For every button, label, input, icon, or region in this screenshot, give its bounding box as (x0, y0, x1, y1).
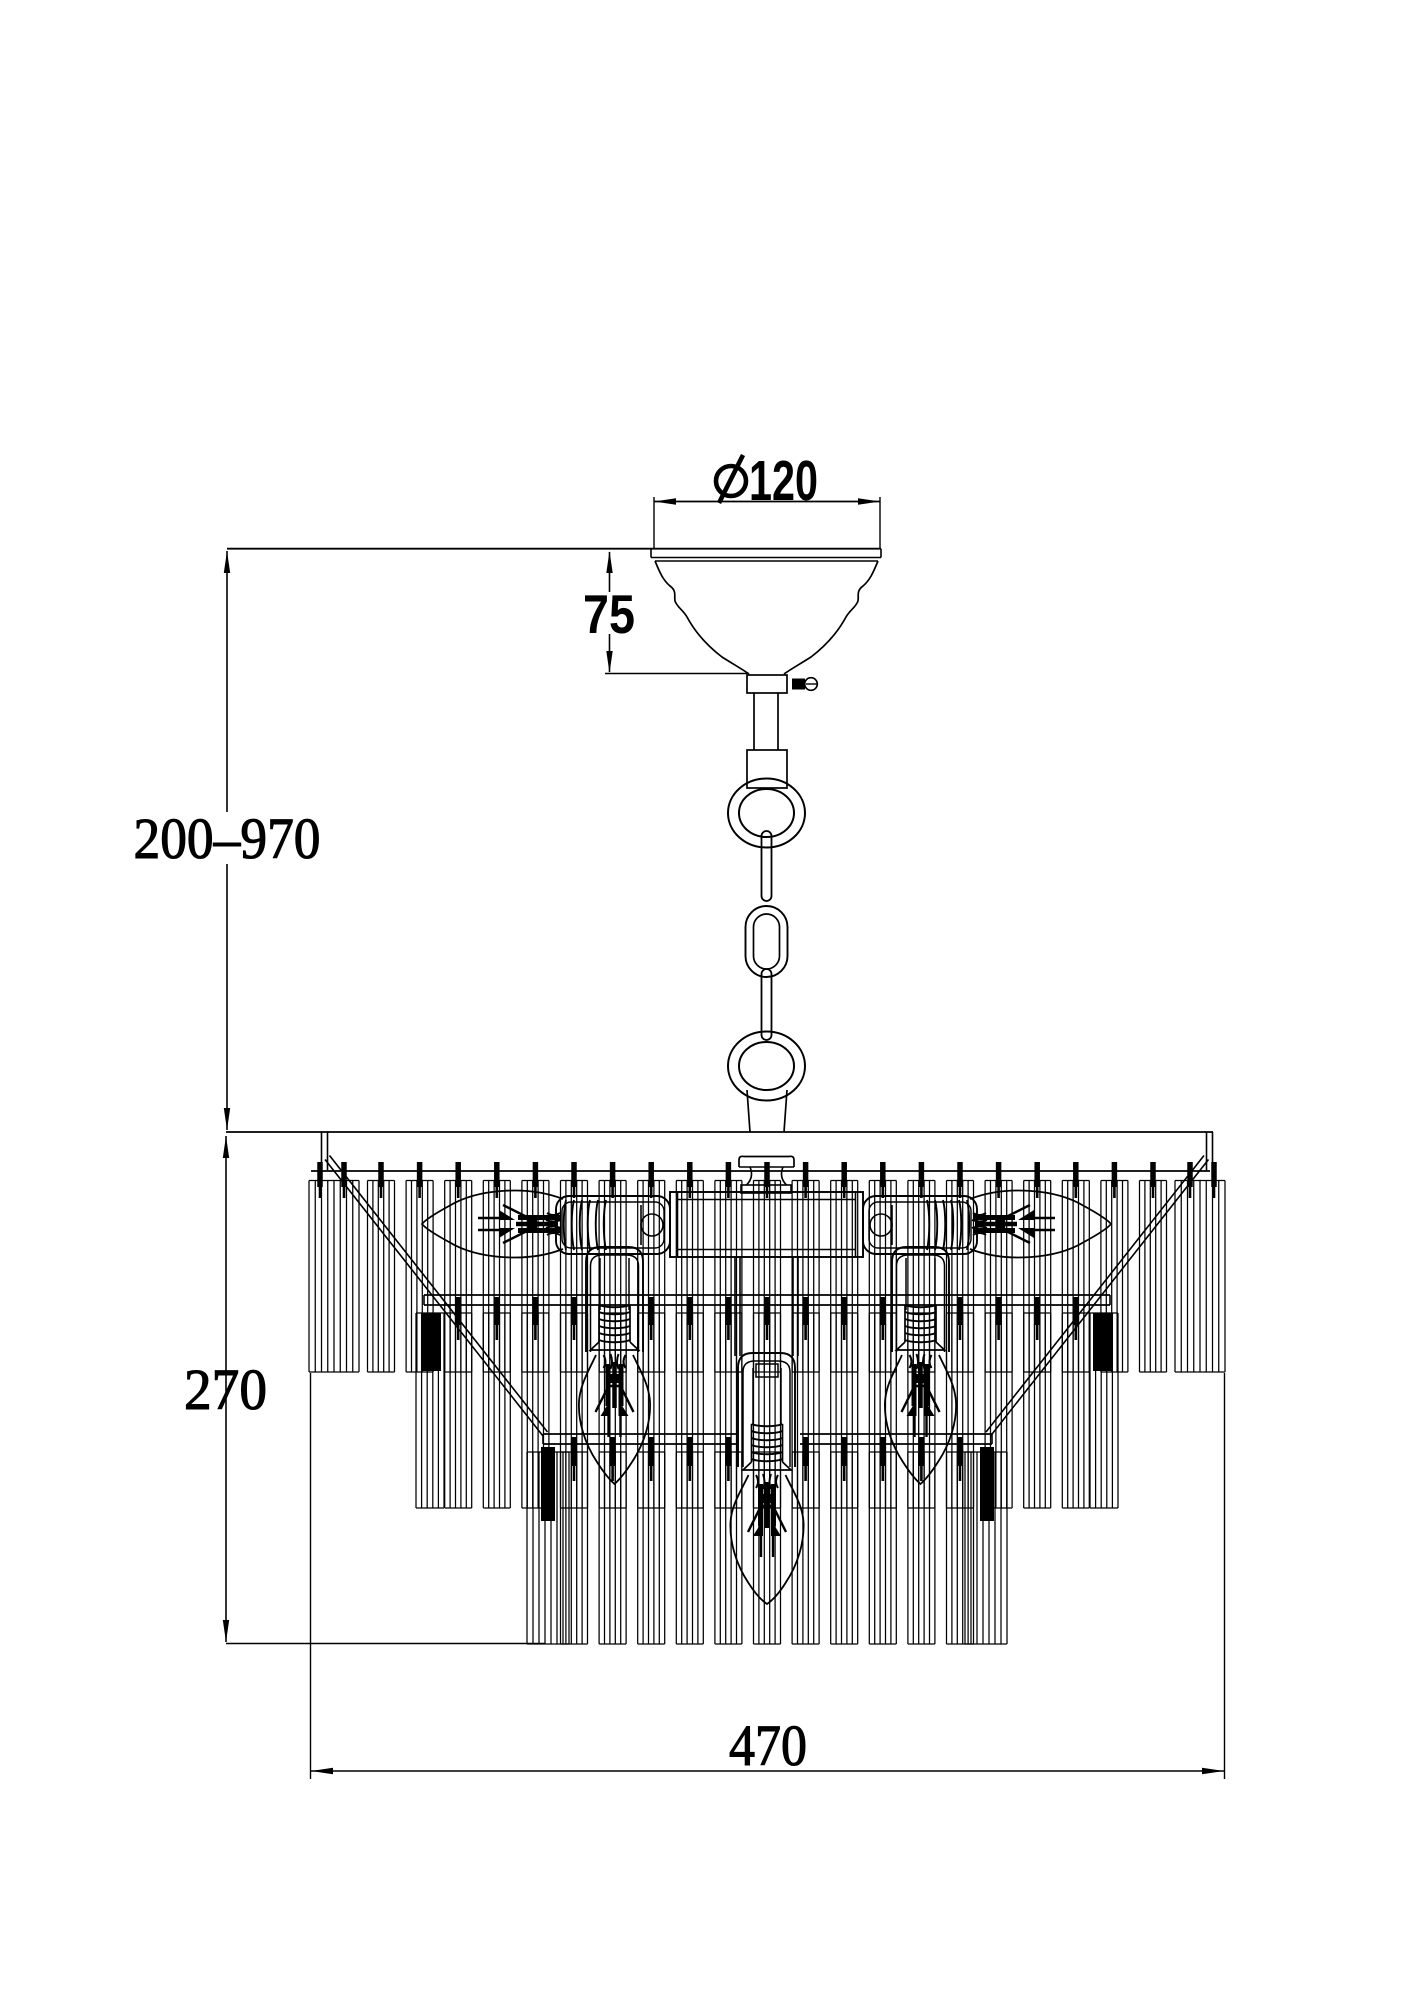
svg-text:470: 470 (729, 1713, 807, 1778)
svg-text:270: 270 (184, 1357, 267, 1422)
svg-text:120: 120 (749, 449, 818, 513)
svg-text:200–970: 200–970 (134, 806, 321, 871)
